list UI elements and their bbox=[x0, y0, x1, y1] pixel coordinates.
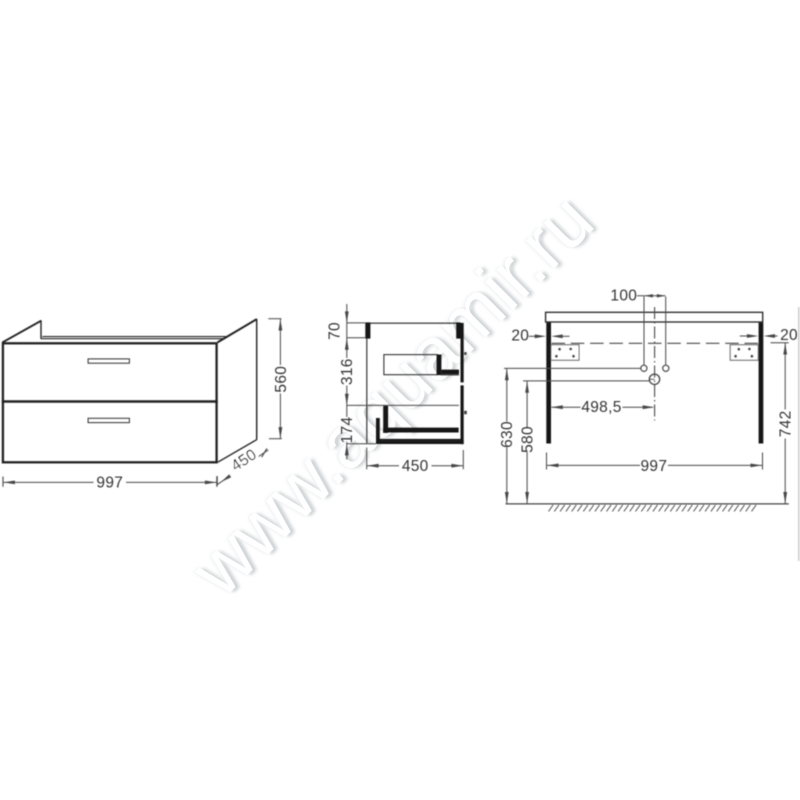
svg-text:560: 560 bbox=[273, 366, 290, 393]
svg-text:997: 997 bbox=[96, 475, 123, 492]
svg-text:630: 630 bbox=[499, 421, 516, 448]
svg-text:174: 174 bbox=[339, 417, 356, 444]
svg-text:20: 20 bbox=[511, 328, 529, 345]
svg-text:20: 20 bbox=[780, 327, 798, 344]
svg-text:450: 450 bbox=[402, 458, 429, 475]
svg-text:997: 997 bbox=[641, 458, 668, 475]
svg-text:498,5: 498,5 bbox=[581, 399, 621, 416]
svg-text:70: 70 bbox=[326, 322, 343, 340]
svg-text:742: 742 bbox=[778, 411, 795, 438]
svg-text:100: 100 bbox=[610, 287, 637, 304]
svg-text:316: 316 bbox=[339, 358, 356, 385]
svg-text:580: 580 bbox=[520, 426, 537, 453]
